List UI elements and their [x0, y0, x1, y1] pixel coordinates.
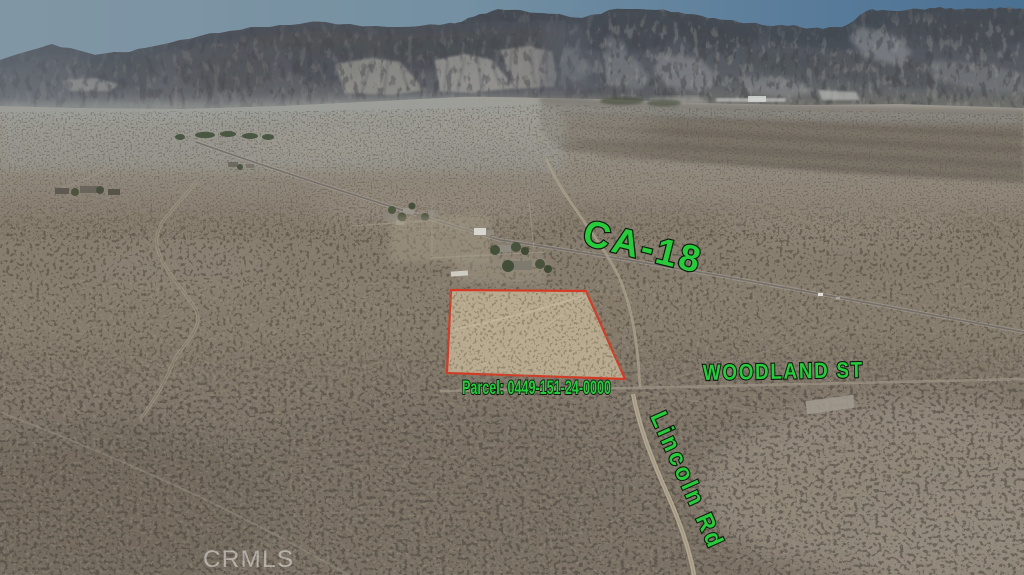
svg-text:WOODLAND ST: WOODLAND ST	[703, 357, 864, 385]
svg-text:Parcel: 0449-151-24-0000: Parcel: 0449-151-24-0000	[462, 378, 611, 399]
svg-text:CRMLS: CRMLS	[203, 546, 295, 573]
